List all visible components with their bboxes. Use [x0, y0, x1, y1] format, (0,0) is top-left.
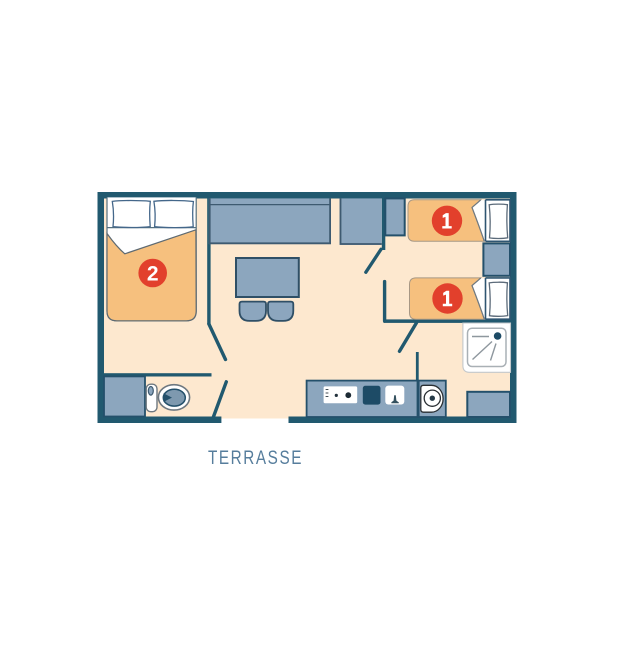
svg-text:2: 2: [147, 263, 159, 286]
svg-text:TERRASSE: TERRASSE: [208, 447, 303, 469]
